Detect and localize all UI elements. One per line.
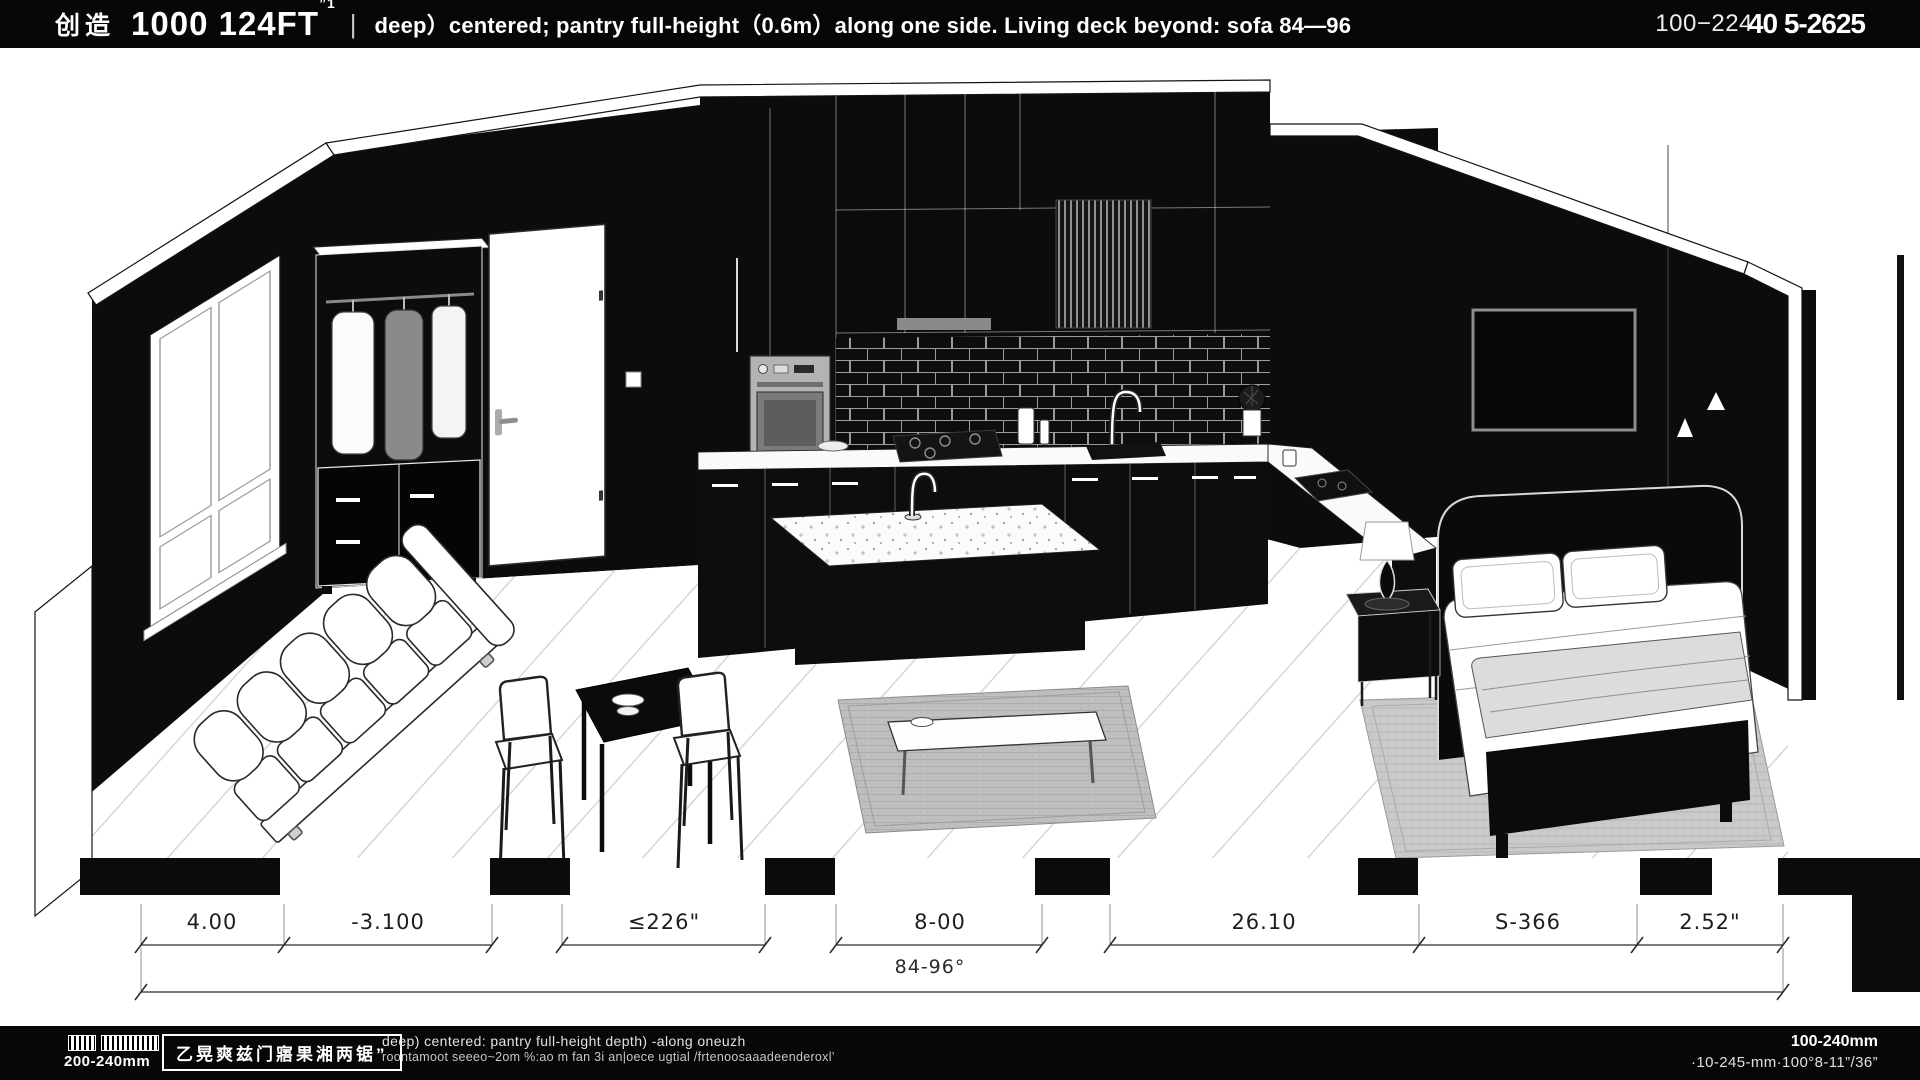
- title-number: 1000 124FT: [131, 5, 319, 42]
- footer-dim-1: 100-240mm: [1691, 1031, 1878, 1052]
- dimension-label-overall: 84-96°: [860, 956, 1000, 978]
- coat-hangers: [332, 294, 466, 460]
- footer-dim-2: ·10-245-mm·100°8-11”/36”: [1691, 1052, 1878, 1073]
- isometric-scene: [0, 48, 1920, 1026]
- spec-notes: deep) centered: pantry full-height depth…: [382, 1033, 835, 1065]
- range-hood: [897, 318, 991, 330]
- footer-right-block: 100-240mm ·10-245-mm·100°8-11”/36”: [1691, 1031, 1878, 1073]
- drawing-canvas: 4.00 -3.100 ≤226" 8-00 26.10 S-366 2.52"…: [0, 48, 1920, 1026]
- entry-door: [489, 224, 605, 566]
- hanging-jacket-gray: [385, 310, 423, 460]
- blueprint-page: 创造 1000 124FT”1 | deep）centered; pantry …: [0, 0, 1920, 1080]
- sheet-reference: 100−22440 5-2625: [1655, 0, 1865, 48]
- outer-wall-strip: [1802, 290, 1816, 700]
- sheet-ref-normal: 100−224: [1655, 10, 1753, 38]
- dimension-label-1: 4.00: [142, 910, 282, 934]
- title-divider: |: [350, 9, 357, 40]
- plant: [1239, 385, 1265, 436]
- hanging-shirt-small: [432, 306, 466, 438]
- table-bowl: [612, 694, 644, 706]
- spec-note-line1: deep) centered: pantry full-height depth…: [382, 1033, 835, 1049]
- sheet-ref-bold: 40 5-2625: [1748, 8, 1865, 40]
- plate: [818, 441, 848, 451]
- mug: [1283, 450, 1296, 466]
- brand-cjk-logo: 创造: [55, 6, 115, 42]
- stamp-box: 乙晃爽兹门寤果湘两锯”: [162, 1034, 402, 1071]
- page-title: 1000 124FT”1: [131, 5, 336, 43]
- right-edge-strip: [1897, 255, 1904, 700]
- spec-subtitle: deep）centered; pantry full-height（0.6m）a…: [375, 8, 1352, 40]
- dimension-label-6: S-366: [1458, 910, 1598, 934]
- living-rug: [838, 686, 1156, 833]
- pillow-right: [1562, 545, 1668, 608]
- scale-label: 200-240mm: [64, 1053, 150, 1070]
- spec-note-line2: roontamoot seeeo~2om %:ao m fan 3i an|oe…: [382, 1049, 835, 1065]
- title-superscript: ”1: [319, 0, 336, 11]
- dimension-label-7: 2.52": [1640, 910, 1780, 934]
- pillow-left: [1452, 552, 1564, 617]
- hanging-shirt-white: [332, 312, 374, 454]
- coffee-table-bowl: [911, 718, 933, 727]
- dimension-label-4: 8-00: [870, 910, 1010, 934]
- dimension-label-2: -3.100: [318, 910, 458, 934]
- title-bar: 创造 1000 124FT”1 | deep）centered; pantry …: [0, 0, 1920, 48]
- light-switch: [626, 372, 641, 387]
- framed-art: [1473, 310, 1635, 430]
- barcode-logo-icon: [68, 1035, 159, 1049]
- lamp-shade: [1360, 522, 1414, 560]
- slat-panel: [1056, 200, 1151, 328]
- dimension-label-3: ≤226": [594, 910, 734, 934]
- title-block: 200-240mm 乙晃爽兹门寤果湘两锯” deep) centered: pa…: [0, 1026, 1920, 1080]
- dimension-label-5: 26.10: [1194, 910, 1334, 934]
